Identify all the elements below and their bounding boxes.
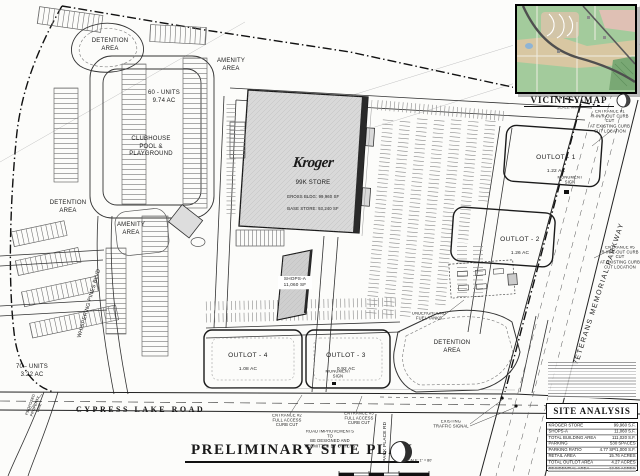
note-monument-sign-e: MONUMENT SIGN xyxy=(555,176,585,186)
label-outlot-4: OUTLOT - 4 1.08 AC xyxy=(220,344,276,382)
outlot-2-area: 1.26 AC xyxy=(498,251,543,257)
kroger-label-block: Kroger 99K STORE GROSS BLDG: 99,960 SF B… xyxy=(272,148,354,223)
note-monument-sign-s: MONUMENT SIGN xyxy=(323,370,353,380)
vicinity-map-inset xyxy=(515,4,637,94)
site-analysis-title: SITE ANALYSIS xyxy=(546,403,638,419)
site-plan-sheet: DETENTION AREA AMENITY AREA 60 - UNITS 9… xyxy=(0,0,640,476)
outlot-2-name: OUTLOT - 2 xyxy=(492,236,548,244)
outlot-1-name: OUTLOT - 1 xyxy=(528,154,584,162)
note-entrance-1: ENTRANCE #1 R-IN/R-OUT CURB CUT AT EXIST… xyxy=(588,110,632,134)
label-amenity-w: AMENITY AREA xyxy=(108,222,154,237)
outlot-4-name: OUTLOT - 4 xyxy=(220,352,276,360)
note-entrance-5: ENTRANCE #5 R-IN/R-OUT CURB CUT AT EXIST… xyxy=(598,246,640,270)
outlot-4-area: 1.08 AC xyxy=(226,367,271,373)
graphic-scale-bar xyxy=(338,466,430,476)
label-detention-w: DETENTION AREA xyxy=(44,200,92,215)
note-entrance-2: ENTRANCE #2 FULL ACCESS CURB CUT xyxy=(267,414,306,429)
label-cypress-lake-road: CYPRESS LAKE ROAD xyxy=(76,405,205,414)
general-notes-text xyxy=(548,362,636,398)
note-fuel-tanks: UNDERGROUND FUEL TANKS xyxy=(411,312,448,322)
kroger-base-area: BASE STORE: 93,240 SF xyxy=(284,207,341,212)
kroger-logo: Kroger xyxy=(271,156,355,171)
label-units-60: 60 - UNITS 9.74 AC xyxy=(136,90,192,105)
site-analysis-panel: SITE ANALYSIS KROGER STORE99,960 S.F. SH… xyxy=(546,403,638,471)
note-traffic-signal: EXISTING TRAFFIC SIGNAL xyxy=(433,420,470,430)
note-entrance-3: ENTRANCE #3 FULL ACCESS CURB CUT xyxy=(339,412,378,427)
vicinity-map-scale: SCALE: N.T.S. xyxy=(542,106,596,110)
parking-field xyxy=(359,105,507,324)
outlot-1-area: 1.22 AC xyxy=(534,169,579,175)
label-detention-se: DETENTION AREA xyxy=(422,340,482,355)
label-shops-a: SHOPS-A 11,060 SF xyxy=(278,276,312,289)
vicinity-north-icon xyxy=(616,93,631,113)
label-amenity-n: AMENITY AREA xyxy=(208,58,254,73)
north-arrow-icon xyxy=(389,440,413,469)
footnote-text xyxy=(548,468,636,473)
site-analysis-table: KROGER STORE99,960 S.F. SHOPS-A11,060 S.… xyxy=(546,422,638,471)
kroger-store-size: 99K STORE xyxy=(272,180,354,188)
label-units-70: 70 - UNITS 3.22 AC xyxy=(6,364,58,379)
label-outlot-2: OUTLOT - 2 1.26 AC xyxy=(492,228,548,266)
label-detention-nw: DETENTION AREA xyxy=(86,38,134,53)
label-clubhouse: CLUBHOUSE POOL & PLAYGROUND xyxy=(122,136,180,159)
kroger-gross-area: GROSS BLDG: 99,960 SF xyxy=(284,195,341,200)
outlot-3-name: OUTLOT - 3 xyxy=(318,352,374,360)
